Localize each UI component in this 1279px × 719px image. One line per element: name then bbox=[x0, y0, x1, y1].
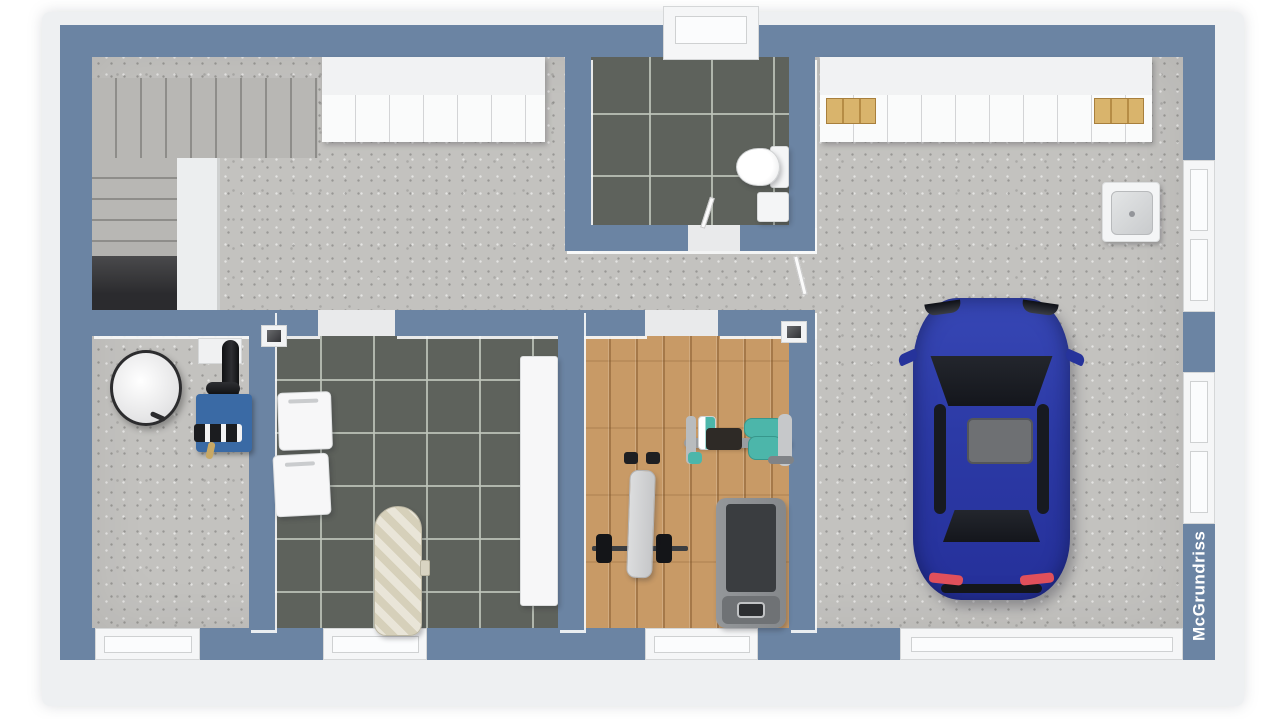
bathroom-door-opening bbox=[688, 225, 740, 251]
dryer-slot bbox=[285, 461, 315, 467]
staircase-landing-slab bbox=[92, 242, 177, 256]
car-sunroof bbox=[967, 418, 1033, 464]
machine-foot-pad bbox=[688, 452, 702, 464]
garage-side-door-lower-pane1 bbox=[1190, 381, 1208, 443]
garage-door-opening bbox=[900, 628, 1183, 660]
garage-side-door-upper bbox=[1183, 160, 1215, 312]
treadmill-display bbox=[737, 602, 765, 618]
water-tank bbox=[110, 350, 182, 426]
laundry-door-opening bbox=[318, 310, 395, 336]
utility-sink bbox=[1102, 182, 1160, 242]
bathroom-window bbox=[663, 6, 759, 60]
car bbox=[913, 298, 1070, 600]
exterior-wall-left bbox=[60, 25, 92, 660]
bench-rack-pad-right bbox=[646, 452, 660, 464]
window-gym-pane bbox=[654, 636, 750, 653]
car-rear-trim bbox=[941, 584, 1042, 593]
exterior-wall-top bbox=[60, 25, 1215, 57]
wall-vent-left-inner bbox=[267, 330, 281, 342]
gym-door-opening bbox=[645, 310, 718, 336]
stair-enclosure-wall bbox=[177, 158, 217, 310]
dryer bbox=[272, 453, 331, 518]
bathroom-vanity bbox=[757, 192, 789, 222]
staircase-upper-flight bbox=[92, 78, 318, 158]
garage-door-sill bbox=[911, 637, 1173, 652]
bench-rack-pad-left bbox=[624, 452, 638, 464]
ironing-board bbox=[374, 506, 422, 636]
garage-side-door-lower-pane2 bbox=[1190, 451, 1208, 513]
treadmill bbox=[716, 498, 786, 628]
machine-weight-pad bbox=[706, 428, 742, 450]
car-side-window-left bbox=[934, 404, 946, 514]
wardrobe-cabinet bbox=[322, 57, 545, 142]
window-utility-pane bbox=[104, 636, 192, 653]
machine-rear-bar bbox=[768, 456, 794, 464]
wood-crate-right bbox=[1094, 98, 1144, 124]
iron-rest-hook bbox=[420, 560, 430, 576]
washing-machine bbox=[277, 391, 333, 451]
wall-vent-right-inner bbox=[787, 326, 801, 338]
toilet-bowl bbox=[736, 148, 780, 186]
wall-utility-laundry bbox=[249, 310, 275, 630]
wardrobe-door-seams bbox=[322, 95, 545, 142]
wall-hall-bathroom bbox=[565, 57, 591, 251]
window-laundry-pane bbox=[332, 636, 419, 653]
washing-machine-slot bbox=[288, 399, 318, 404]
boiler-valves bbox=[194, 424, 242, 442]
garage-side-door-upper-pane1 bbox=[1190, 169, 1208, 231]
garage-side-door-upper-pane2 bbox=[1190, 239, 1208, 301]
treadmill-belt bbox=[726, 504, 776, 592]
exercise-machine bbox=[682, 412, 794, 474]
watermark-label: McGrundriss bbox=[1185, 516, 1213, 656]
floorplan-canvas: McGrundriss bbox=[0, 0, 1279, 719]
car-side-window-right bbox=[1037, 404, 1049, 514]
window-utility bbox=[95, 628, 200, 660]
wall-vent-box-right bbox=[781, 321, 807, 343]
wall-laundry-gym bbox=[558, 310, 584, 630]
wall-bathroom-right bbox=[789, 57, 815, 251]
barbell-plates-left bbox=[596, 534, 612, 563]
car-windshield bbox=[928, 356, 1055, 406]
car-rear-window bbox=[943, 510, 1040, 542]
window-gym bbox=[645, 628, 758, 660]
staircase-lower-flight bbox=[92, 158, 177, 242]
garage-side-door-lower bbox=[1183, 372, 1215, 524]
utility-sink-drain bbox=[1129, 211, 1135, 217]
bathroom-window-pane bbox=[675, 16, 747, 44]
understair-void bbox=[92, 256, 177, 310]
wood-crate-left bbox=[826, 98, 876, 124]
laundry-counter bbox=[520, 356, 558, 606]
barbell-plates-right bbox=[656, 534, 672, 563]
wall-main-middle bbox=[395, 310, 645, 336]
boiler-body bbox=[196, 394, 252, 452]
wall-vent-box-left bbox=[261, 325, 287, 347]
weight-bench bbox=[626, 470, 656, 579]
